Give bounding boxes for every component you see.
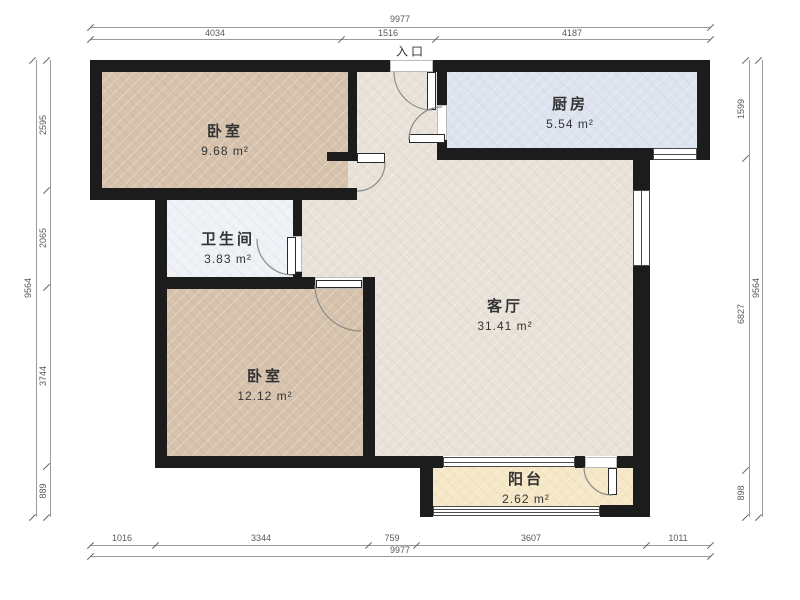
wall-segment <box>90 72 102 200</box>
wall-segment <box>420 456 433 517</box>
dim-tick <box>29 514 36 521</box>
wall-segment <box>363 277 375 468</box>
door-panel-bedroom-1 <box>357 153 385 163</box>
room-area: 3.83 m² <box>201 252 255 266</box>
dim-label: 3344 <box>251 533 271 543</box>
door-panel-bathroom <box>287 237 296 275</box>
wall-segment <box>433 60 710 72</box>
room-label-balcony: 阳台 2.62 m² <box>502 468 550 506</box>
dim-label-total: 9977 <box>390 545 410 555</box>
room-name: 卫生间 <box>201 228 255 249</box>
dim-label: 1599 <box>736 99 746 119</box>
dim-tick <box>707 36 714 43</box>
door-opening-balcony <box>585 457 617 468</box>
room-area: 31.41 m² <box>477 319 532 333</box>
dim-label: 4034 <box>205 28 225 38</box>
wall-segment <box>90 188 357 200</box>
dim-tick <box>29 57 36 64</box>
dim-label: 1011 <box>668 533 687 543</box>
door-panel-balcony <box>608 468 617 495</box>
window-living-right <box>633 190 650 266</box>
dim-label: 4187 <box>562 28 582 38</box>
door-panel-kitchen <box>409 134 445 143</box>
wall-segment <box>617 456 650 468</box>
dim-label: 889 <box>38 483 48 498</box>
wall-segment <box>447 148 653 160</box>
dim-tick <box>707 553 714 560</box>
wall-segment <box>437 140 447 160</box>
dim-tick <box>742 155 749 162</box>
room-area: 12.12 m² <box>237 389 292 403</box>
wall-segment <box>155 188 167 468</box>
wall-segment <box>437 72 447 105</box>
dim-label: 898 <box>736 485 746 500</box>
wall-segment <box>155 277 315 289</box>
dim-line <box>36 60 37 517</box>
room-name: 阳台 <box>502 468 550 489</box>
dim-line <box>90 27 710 28</box>
room-name: 卧室 <box>237 365 292 386</box>
wall-segment <box>327 152 357 161</box>
dim-tick <box>742 57 749 64</box>
dim-tick <box>43 187 50 194</box>
room-label-bathroom: 卫生间 3.83 m² <box>201 228 255 266</box>
wall-segment <box>600 505 650 517</box>
wall-segment <box>293 200 302 236</box>
dim-label: 3744 <box>38 366 48 386</box>
window-balcony-slider <box>443 457 575 467</box>
dim-line <box>762 60 763 517</box>
dim-tick <box>742 514 749 521</box>
room-area: 2.62 m² <box>502 492 550 506</box>
dim-line <box>749 60 750 517</box>
room-label-living-room: 客厅 31.41 m² <box>477 295 532 333</box>
dim-tick <box>707 542 714 549</box>
dim-tick <box>707 24 714 31</box>
dim-label: 3607 <box>521 533 541 543</box>
dim-label-total: 9977 <box>390 14 410 24</box>
dim-label-total: 9564 <box>23 278 33 298</box>
dim-line <box>90 39 710 40</box>
dim-label: 6827 <box>736 304 746 324</box>
door-panel-bedroom-2 <box>316 280 362 288</box>
dim-tick <box>755 514 762 521</box>
wall-segment <box>90 60 390 72</box>
room-label-bedroom-1: 卧室 9.68 m² <box>201 120 249 158</box>
door-opening-entry <box>390 60 433 72</box>
wall-segment <box>155 456 375 468</box>
room-name: 厨房 <box>546 93 594 114</box>
room-label-kitchen: 厨房 5.54 m² <box>546 93 594 131</box>
room-name: 卧室 <box>201 120 249 141</box>
dim-label: 1016 <box>112 533 132 543</box>
dim-tick <box>43 514 50 521</box>
dim-label-total: 9564 <box>751 278 761 298</box>
dim-tick <box>742 467 749 474</box>
room-label-bedroom-2: 卧室 12.12 m² <box>237 365 292 403</box>
room-area: 5.54 m² <box>546 117 594 131</box>
dim-label: 2065 <box>38 228 48 248</box>
window-kitchen <box>653 148 697 160</box>
window-balcony-bottom <box>433 506 600 516</box>
wall-segment <box>575 456 585 468</box>
entrance-label: 入口 <box>396 43 426 60</box>
room-area: 9.68 m² <box>201 144 249 158</box>
wall-segment <box>348 72 357 152</box>
dim-label: 2595 <box>38 115 48 135</box>
dim-label: 1516 <box>378 28 398 38</box>
dim-label: 759 <box>384 533 399 543</box>
dim-tick <box>43 463 50 470</box>
wall-segment <box>697 60 710 160</box>
dim-tick <box>755 57 762 64</box>
dim-line <box>90 556 710 557</box>
dim-tick <box>43 284 50 291</box>
dim-tick <box>43 57 50 64</box>
dim-line <box>50 60 51 517</box>
floor-plan-canvas: 卧室 9.68 m² 厨房 5.54 m² 卫生间 3.83 m² 客厅 31.… <box>0 0 800 600</box>
room-name: 客厅 <box>477 295 532 316</box>
door-panel-entry <box>427 72 436 110</box>
